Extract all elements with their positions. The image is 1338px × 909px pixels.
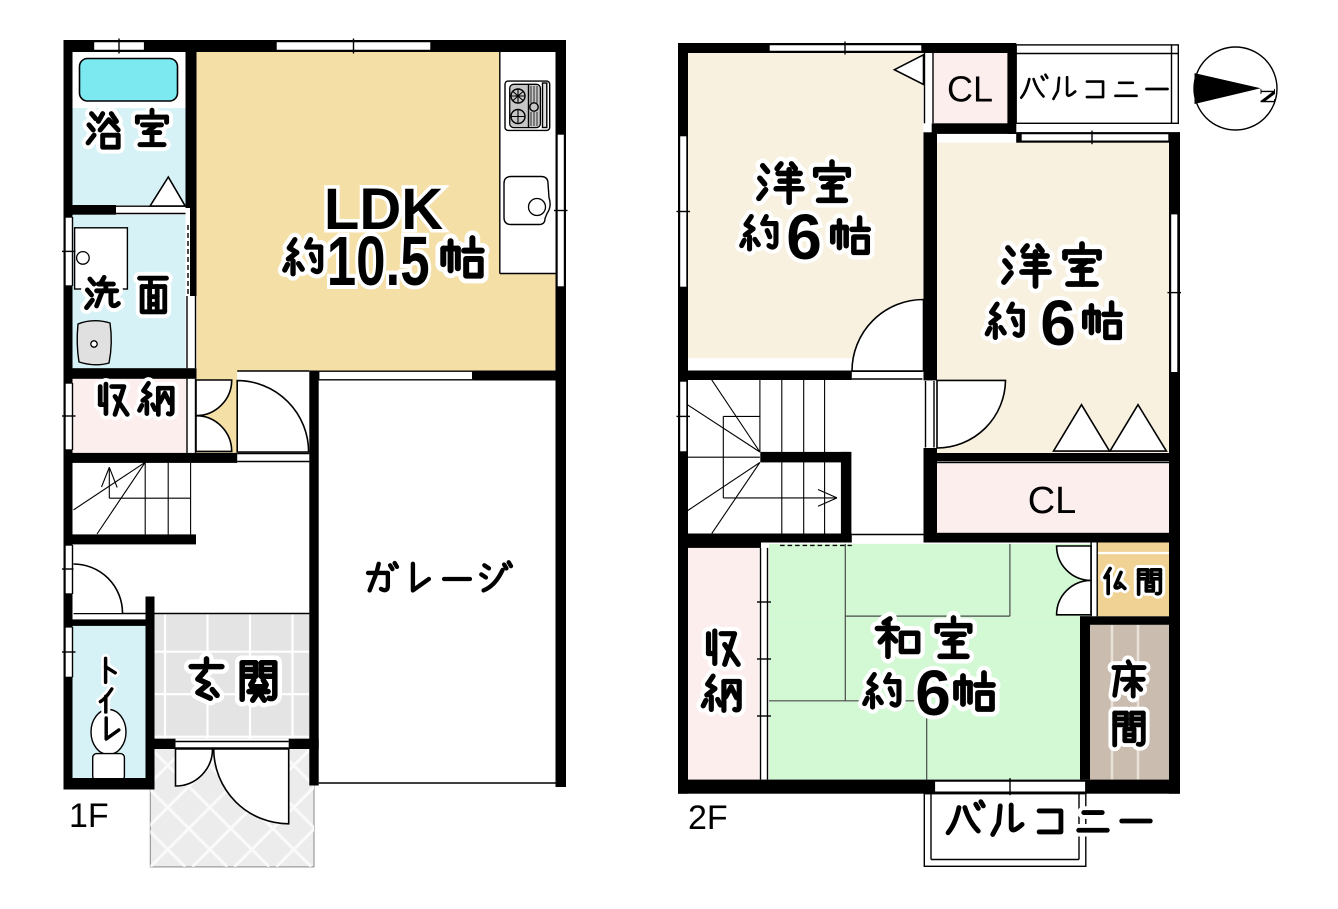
svg-text:CL: CL [1028, 480, 1077, 522]
svg-text:6: 6 [786, 201, 822, 273]
svg-text:1F: 1F [69, 797, 109, 835]
svg-text:2F: 2F [688, 799, 728, 837]
svg-text:CL: CL [947, 69, 993, 110]
svg-text:10.5: 10.5 [327, 222, 430, 300]
svg-text:N: N [1256, 89, 1281, 105]
svg-text:6: 6 [915, 657, 951, 729]
svg-text:6: 6 [1040, 287, 1076, 359]
